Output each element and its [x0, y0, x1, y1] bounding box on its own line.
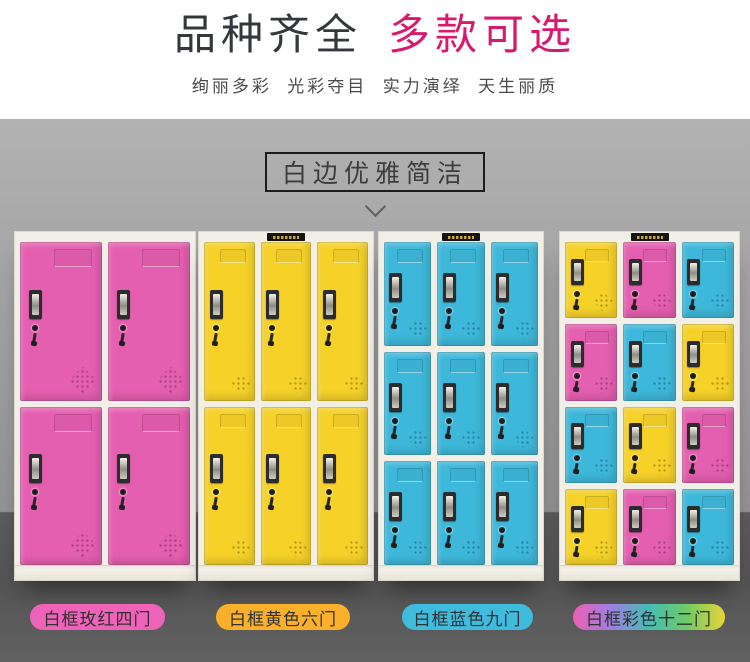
- label-slot: [503, 468, 529, 482]
- vent-icon: [651, 538, 671, 558]
- locker-door-yellow: [317, 242, 368, 401]
- key-icon: [632, 463, 636, 470]
- door-handle: [629, 506, 642, 532]
- door-handle: [389, 383, 402, 412]
- door-handle: [571, 259, 584, 285]
- keyhole-icon: [120, 325, 126, 331]
- locker-door-blue: [565, 407, 617, 483]
- door-handle: [443, 383, 456, 412]
- locker-2: [198, 231, 374, 581]
- door-handle: [29, 454, 42, 483]
- keyhole-icon: [269, 489, 275, 495]
- vent-icon: [514, 428, 534, 448]
- vent-icon: [460, 428, 480, 448]
- label-slot: [702, 496, 726, 509]
- vent-icon: [593, 291, 613, 311]
- chevron-down-icon: [365, 196, 386, 217]
- keyhole-icon: [690, 291, 696, 297]
- vent-icon: [709, 538, 729, 558]
- key-icon: [574, 299, 578, 306]
- door-handle: [687, 341, 700, 367]
- vent-icon: [407, 319, 427, 339]
- label-slot: [397, 359, 423, 373]
- key-icon: [326, 332, 331, 341]
- labels-row: 白框玫红四门白框黄色六门白框蓝色九门白框彩色十二门: [0, 604, 750, 630]
- door-handle: [266, 454, 279, 483]
- door-grid: [560, 242, 739, 565]
- stage: 白边优雅简洁 白框玫红四门白框黄色六门白框蓝色九门白框彩色十二门: [0, 119, 750, 662]
- key-icon: [574, 381, 578, 388]
- hero: 品种齐全多款可选 绚丽多彩 光彩夺目 实力演绎 天生丽质: [0, 0, 750, 119]
- keyhole-icon: [690, 373, 696, 379]
- label-slot: [397, 249, 423, 263]
- door-handle: [496, 383, 509, 412]
- vent-icon: [407, 428, 427, 448]
- door-handle: [323, 290, 336, 319]
- keyhole-icon: [326, 489, 332, 495]
- door-handle: [687, 259, 700, 285]
- locker-door-yellow: [204, 242, 255, 401]
- banner-label: 白边优雅简洁: [282, 154, 468, 190]
- keyhole-icon: [632, 373, 638, 379]
- locker-3: [378, 231, 544, 581]
- key-icon: [574, 463, 578, 470]
- door-handle: [629, 341, 642, 367]
- vent-icon: [460, 319, 480, 339]
- label-slot: [643, 414, 667, 427]
- vent-icon: [593, 538, 613, 558]
- key-icon: [632, 299, 636, 306]
- vent-icon: [69, 367, 96, 394]
- tagline: 绚丽多彩 光彩夺目 实力演绎 天生丽质: [0, 72, 750, 97]
- label-slot: [585, 496, 609, 509]
- key-icon: [691, 299, 695, 306]
- key-icon: [32, 497, 37, 506]
- label-slot: [333, 249, 359, 263]
- key-icon: [120, 497, 125, 506]
- locker-door-yellow: [623, 407, 675, 483]
- locker-4: [559, 231, 740, 581]
- locker-door-yellow: [317, 407, 368, 566]
- brand-plate: [267, 233, 305, 241]
- door-handle: [117, 454, 130, 483]
- label-pill-1: 白框玫红四门: [30, 604, 165, 630]
- door-handle: [496, 492, 509, 521]
- keyhole-icon: [574, 538, 580, 544]
- vent-icon: [651, 374, 671, 394]
- keyhole-icon: [32, 489, 38, 495]
- key-icon: [499, 426, 504, 435]
- keyhole-icon: [574, 291, 580, 297]
- locker-top-frame: [379, 232, 543, 242]
- key-icon: [392, 535, 397, 544]
- label-slot: [643, 496, 667, 509]
- keyhole-icon: [690, 455, 696, 461]
- key-icon: [392, 316, 397, 325]
- keyhole-icon: [392, 418, 398, 424]
- label-slot: [503, 359, 529, 373]
- label-pill-3: 白框蓝色九门: [402, 604, 533, 630]
- door-grid: [199, 242, 373, 565]
- key-icon: [691, 381, 695, 388]
- keyhole-icon: [499, 527, 505, 533]
- door-handle: [389, 492, 402, 521]
- door-handle: [687, 506, 700, 532]
- keyhole-icon: [269, 325, 275, 331]
- locker-door-pink: [20, 242, 102, 401]
- vent-icon: [157, 531, 184, 558]
- door-handle: [687, 423, 700, 449]
- locker-door-blue: [623, 324, 675, 400]
- locker-door-blue: [682, 489, 734, 565]
- door-handle: [571, 506, 584, 532]
- door-handle: [117, 290, 130, 319]
- door-handle: [210, 290, 223, 319]
- locker-door-pink: [20, 407, 102, 566]
- vent-icon: [343, 374, 363, 394]
- locker-door-yellow: [261, 242, 312, 401]
- vent-icon: [287, 374, 307, 394]
- label-slot: [397, 468, 423, 482]
- door-handle: [443, 273, 456, 302]
- label-slot: [503, 249, 529, 263]
- vent-icon: [230, 374, 250, 394]
- keyhole-icon: [574, 373, 580, 379]
- keyhole-icon: [446, 527, 452, 533]
- page-title-accent: 多款可选: [388, 11, 576, 58]
- door-handle: [629, 423, 642, 449]
- key-icon: [120, 332, 125, 341]
- vent-icon: [709, 291, 729, 311]
- key-icon: [446, 535, 451, 544]
- locker-door-yellow: [204, 407, 255, 566]
- keyhole-icon: [213, 325, 219, 331]
- locker-door-yellow: [261, 407, 312, 566]
- key-icon: [213, 332, 218, 341]
- keyhole-icon: [574, 455, 580, 461]
- key-icon: [446, 426, 451, 435]
- label-slot: [643, 331, 667, 344]
- label-slot: [276, 249, 302, 263]
- vent-icon: [287, 538, 307, 558]
- key-icon: [632, 381, 636, 388]
- keyhole-icon: [690, 538, 696, 544]
- vent-icon: [407, 538, 427, 558]
- vent-icon: [343, 538, 363, 558]
- label-slot: [450, 249, 476, 263]
- locker-plinth: [560, 565, 739, 580]
- key-icon: [392, 426, 397, 435]
- locker-door-blue: [491, 461, 538, 565]
- label-slot: [585, 249, 609, 262]
- vent-icon: [514, 538, 534, 558]
- locker-door-blue: [384, 461, 431, 565]
- label-slot: [450, 359, 476, 373]
- door-handle: [571, 423, 584, 449]
- key-icon: [269, 332, 274, 341]
- keyhole-icon: [632, 538, 638, 544]
- locker-door-blue: [491, 352, 538, 456]
- locker-plinth: [199, 565, 373, 580]
- keyhole-icon: [499, 418, 505, 424]
- vent-icon: [709, 374, 729, 394]
- vent-icon: [514, 319, 534, 339]
- key-icon: [691, 463, 695, 470]
- label-slot: [54, 414, 92, 432]
- door-handle: [571, 341, 584, 367]
- key-icon: [632, 545, 636, 552]
- keyhole-icon: [446, 308, 452, 314]
- locker-1: [14, 231, 196, 581]
- keyhole-icon: [120, 489, 126, 495]
- brand-plate: [631, 233, 669, 241]
- keyhole-icon: [32, 325, 38, 331]
- vent-icon: [230, 538, 250, 558]
- door-handle: [443, 492, 456, 521]
- keyhole-icon: [326, 325, 332, 331]
- label-slot: [54, 249, 92, 267]
- door-handle: [266, 290, 279, 319]
- locker-door-blue: [437, 461, 484, 565]
- door-handle: [29, 290, 42, 319]
- locker-door-blue: [682, 242, 734, 318]
- brand-plate: [442, 233, 480, 241]
- label-slot: [220, 249, 246, 263]
- locker-door-yellow: [565, 242, 617, 318]
- label-slot: [702, 249, 726, 262]
- vent-icon: [69, 531, 96, 558]
- locker-plinth: [379, 565, 543, 580]
- label-slot: [585, 414, 609, 427]
- label-slot: [450, 468, 476, 482]
- locker-door-yellow: [682, 324, 734, 400]
- keyhole-icon: [392, 308, 398, 314]
- locker-door-pink: [623, 242, 675, 318]
- key-icon: [446, 316, 451, 325]
- door-handle: [496, 273, 509, 302]
- door-handle: [323, 454, 336, 483]
- locker-door-blue: [384, 352, 431, 456]
- door-grid: [15, 242, 195, 565]
- label-slot: [585, 331, 609, 344]
- key-icon: [574, 545, 578, 552]
- key-icon: [499, 535, 504, 544]
- label-slot: [220, 414, 246, 428]
- label-pill-4: 白框彩色十二门: [573, 604, 725, 630]
- key-icon: [691, 545, 695, 552]
- label-slot: [142, 414, 180, 432]
- locker-door-blue: [437, 242, 484, 346]
- locker-door-blue: [384, 242, 431, 346]
- banner: 白边优雅简洁: [265, 152, 485, 192]
- vent-icon: [157, 367, 184, 394]
- locker-top-frame: [199, 232, 373, 242]
- keyhole-icon: [392, 527, 398, 533]
- locker-door-yellow: [565, 489, 617, 565]
- page-title: 品种齐全多款可选: [0, 0, 750, 58]
- label-slot: [702, 414, 726, 427]
- label-pill-2: 白框黄色六门: [216, 604, 350, 630]
- door-handle: [629, 259, 642, 285]
- label-slot: [276, 414, 302, 428]
- locker-door-pink: [623, 489, 675, 565]
- vent-icon: [651, 456, 671, 476]
- keyhole-icon: [632, 455, 638, 461]
- page-title-dark: 品种齐全: [174, 11, 362, 58]
- locker-plinth: [15, 565, 195, 580]
- vent-icon: [593, 456, 613, 476]
- promo-page: 品种齐全多款可选 绚丽多彩 光彩夺目 实力演绎 天生丽质 白边优雅简洁 白框玫红…: [0, 0, 750, 662]
- locker-top-frame: [560, 232, 739, 242]
- key-icon: [326, 497, 331, 506]
- keyhole-icon: [213, 489, 219, 495]
- keyhole-icon: [632, 291, 638, 297]
- key-icon: [32, 332, 37, 341]
- label-slot: [643, 249, 667, 262]
- lockers-row: [0, 231, 750, 581]
- vent-icon: [593, 374, 613, 394]
- keyhole-icon: [499, 308, 505, 314]
- key-icon: [269, 497, 274, 506]
- key-icon: [213, 497, 218, 506]
- label-slot: [142, 249, 180, 267]
- label-slot: [702, 331, 726, 344]
- door-grid: [379, 242, 543, 565]
- locker-door-pink: [108, 242, 190, 401]
- locker-door-pink: [108, 407, 190, 566]
- locker-top-frame: [15, 232, 195, 242]
- door-handle: [389, 273, 402, 302]
- keyhole-icon: [446, 418, 452, 424]
- label-slot: [333, 414, 359, 428]
- door-handle: [210, 454, 223, 483]
- locker-door-pink: [682, 407, 734, 483]
- vent-icon: [651, 291, 671, 311]
- locker-door-blue: [437, 352, 484, 456]
- key-icon: [499, 316, 504, 325]
- vent-icon: [460, 538, 480, 558]
- vent-icon: [709, 456, 729, 476]
- locker-door-blue: [491, 242, 538, 346]
- locker-door-pink: [565, 324, 617, 400]
